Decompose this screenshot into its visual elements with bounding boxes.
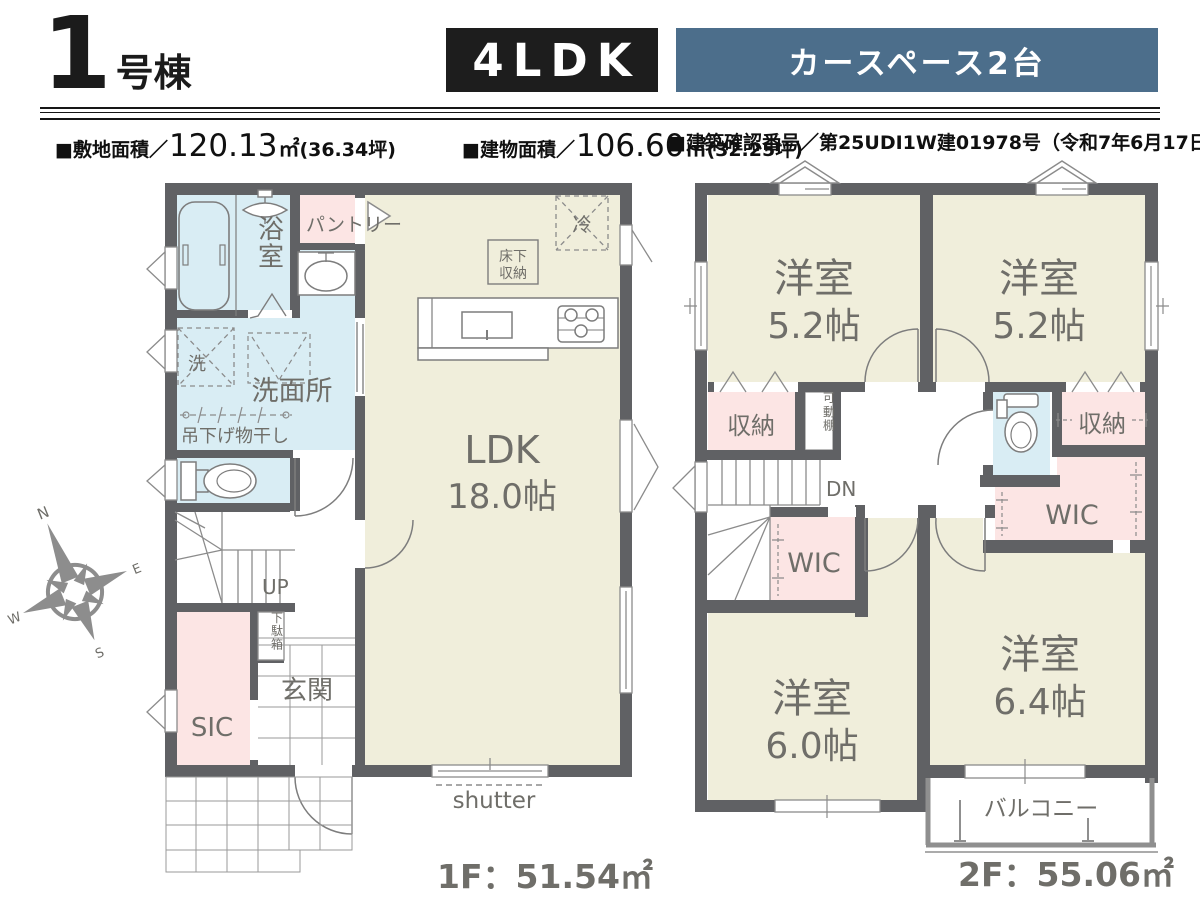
plan-2f: 洋室 5.2帖 洋室 5.2帖 収納 可動棚 収納 DN WIC WIC 洋室 … xyxy=(673,161,1174,894)
casement-window-icon xyxy=(147,335,165,369)
label-bedroom2: 洋室 xyxy=(999,256,1079,302)
gable-vent-icons xyxy=(771,161,1096,183)
label-floor-storage-1: 床下 xyxy=(499,249,527,265)
label-ldk-size: 18.0帖 xyxy=(447,477,557,517)
balcony-post-icon xyxy=(954,800,966,842)
floorplan-flyer: { "header": { "building_number": "1", "b… xyxy=(0,0,1200,900)
label-stairs-down: DN xyxy=(826,477,856,501)
label-fridge: 冷 xyxy=(572,214,591,236)
label-wic-middle: WIC xyxy=(787,548,841,579)
label-entrance: 玄関 xyxy=(281,676,333,706)
label-stairs-up: UP xyxy=(262,575,289,599)
label-balcony: バルコニー xyxy=(984,796,1099,822)
toilet-1f xyxy=(181,462,256,500)
label-2f-area: 2F：55.06㎡ xyxy=(958,855,1174,894)
compass-e: E xyxy=(131,561,144,578)
washroom-door-arc xyxy=(295,458,353,516)
compass-s: S xyxy=(93,645,106,662)
casement-window-icon xyxy=(147,252,165,286)
label-shoe-box: 下駄箱 xyxy=(271,611,283,651)
label-1f-area: 1F：51.54㎡ xyxy=(437,857,653,896)
stove-icon xyxy=(558,306,604,342)
floor-plan-canvas: 浴室 パントリー 洗 洗面所 吊下げ物干し LDK 18.0帖 冷 床下 収納 … xyxy=(0,0,1200,900)
compass-rose-icon: N E S W xyxy=(0,479,168,688)
label-ldk: LDK xyxy=(464,428,540,472)
porch-tiles xyxy=(166,777,352,872)
label-bedroom1: 洋室 xyxy=(774,256,854,302)
label-bedroom1-size: 5.2帖 xyxy=(767,306,860,347)
label-bedroom4: 洋室 xyxy=(1000,632,1080,678)
label-storage-left: 収納 xyxy=(727,412,775,440)
label-bedroom3-size: 6.0帖 xyxy=(765,726,858,767)
label-laundry: 洗 xyxy=(188,354,206,375)
compass-n: N xyxy=(35,503,52,524)
casement-window-icon xyxy=(673,466,695,510)
label-bedroom2-size: 5.2帖 xyxy=(992,306,1085,347)
label-wic-right: WIC xyxy=(1045,500,1099,531)
label-floor-storage-2: 収納 xyxy=(499,266,527,282)
label-hanging-rod: 吊下げ物干し xyxy=(181,426,289,447)
label-movable-shelf: 可動棚 xyxy=(823,391,835,433)
label-pantry: パントリー xyxy=(306,214,402,236)
plan-1f: 浴室 パントリー 洗 洗面所 吊下げ物干し LDK 18.0帖 冷 床下 収納 … xyxy=(147,183,658,896)
label-storage-right: 収納 xyxy=(1078,410,1126,438)
casement-window-icon xyxy=(147,695,165,729)
label-washroom: 洗面所 xyxy=(252,376,333,407)
label-bedroom4-size: 6.4帖 xyxy=(993,682,1086,723)
label-bath: 浴室 xyxy=(258,215,284,272)
label-shutter: shutter xyxy=(453,788,536,814)
washbasin xyxy=(298,252,355,295)
casement-window-icon xyxy=(147,465,165,497)
label-bedroom3: 洋室 xyxy=(772,676,852,722)
label-sic: SIC xyxy=(191,713,233,743)
sliding-window-flag-icon xyxy=(634,424,658,510)
compass-w: W xyxy=(6,610,24,629)
